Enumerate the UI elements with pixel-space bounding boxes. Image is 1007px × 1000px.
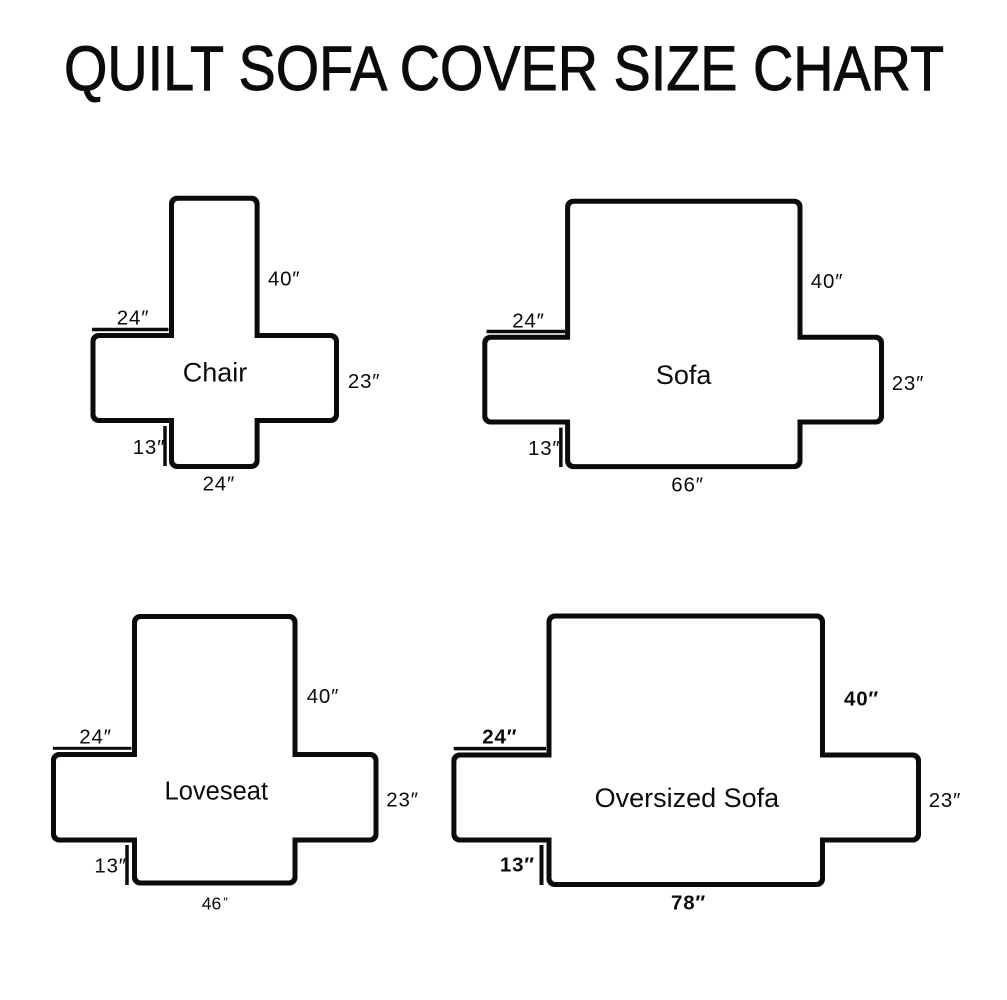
svg-text:24″: 24″ bbox=[79, 725, 111, 748]
svg-text:Sofa: Sofa bbox=[656, 360, 713, 390]
svg-text:40″: 40″ bbox=[844, 687, 879, 710]
svg-text:23″: 23″ bbox=[929, 789, 961, 812]
svg-text:Chair: Chair bbox=[183, 358, 248, 388]
svg-text:66″: 66″ bbox=[671, 473, 703, 496]
svg-text:24″: 24″ bbox=[117, 306, 149, 329]
svg-text:40″: 40″ bbox=[268, 268, 300, 291]
svg-text:13″: 13″ bbox=[500, 854, 535, 877]
svg-text:Loveseat: Loveseat bbox=[165, 777, 269, 805]
svg-text:13″: 13″ bbox=[133, 436, 165, 459]
svg-text:24″: 24″ bbox=[512, 309, 544, 332]
svg-text:40″: 40″ bbox=[307, 685, 339, 708]
svg-text:23″: 23″ bbox=[386, 788, 418, 811]
svg-text:13″: 13″ bbox=[528, 437, 560, 460]
svg-text:QUILT SOFA COVER SIZE CHART: QUILT SOFA COVER SIZE CHART bbox=[64, 34, 944, 104]
svg-text:23″: 23″ bbox=[348, 370, 380, 393]
svg-text:24″: 24″ bbox=[203, 473, 235, 496]
svg-text:78″: 78″ bbox=[671, 891, 706, 914]
svg-text:24″: 24″ bbox=[482, 726, 517, 749]
svg-text:40″: 40″ bbox=[811, 270, 843, 293]
svg-text:23″: 23″ bbox=[892, 372, 924, 395]
svg-text:13″: 13″ bbox=[94, 855, 126, 878]
svg-text:Oversized Sofa: Oversized Sofa bbox=[595, 783, 781, 813]
